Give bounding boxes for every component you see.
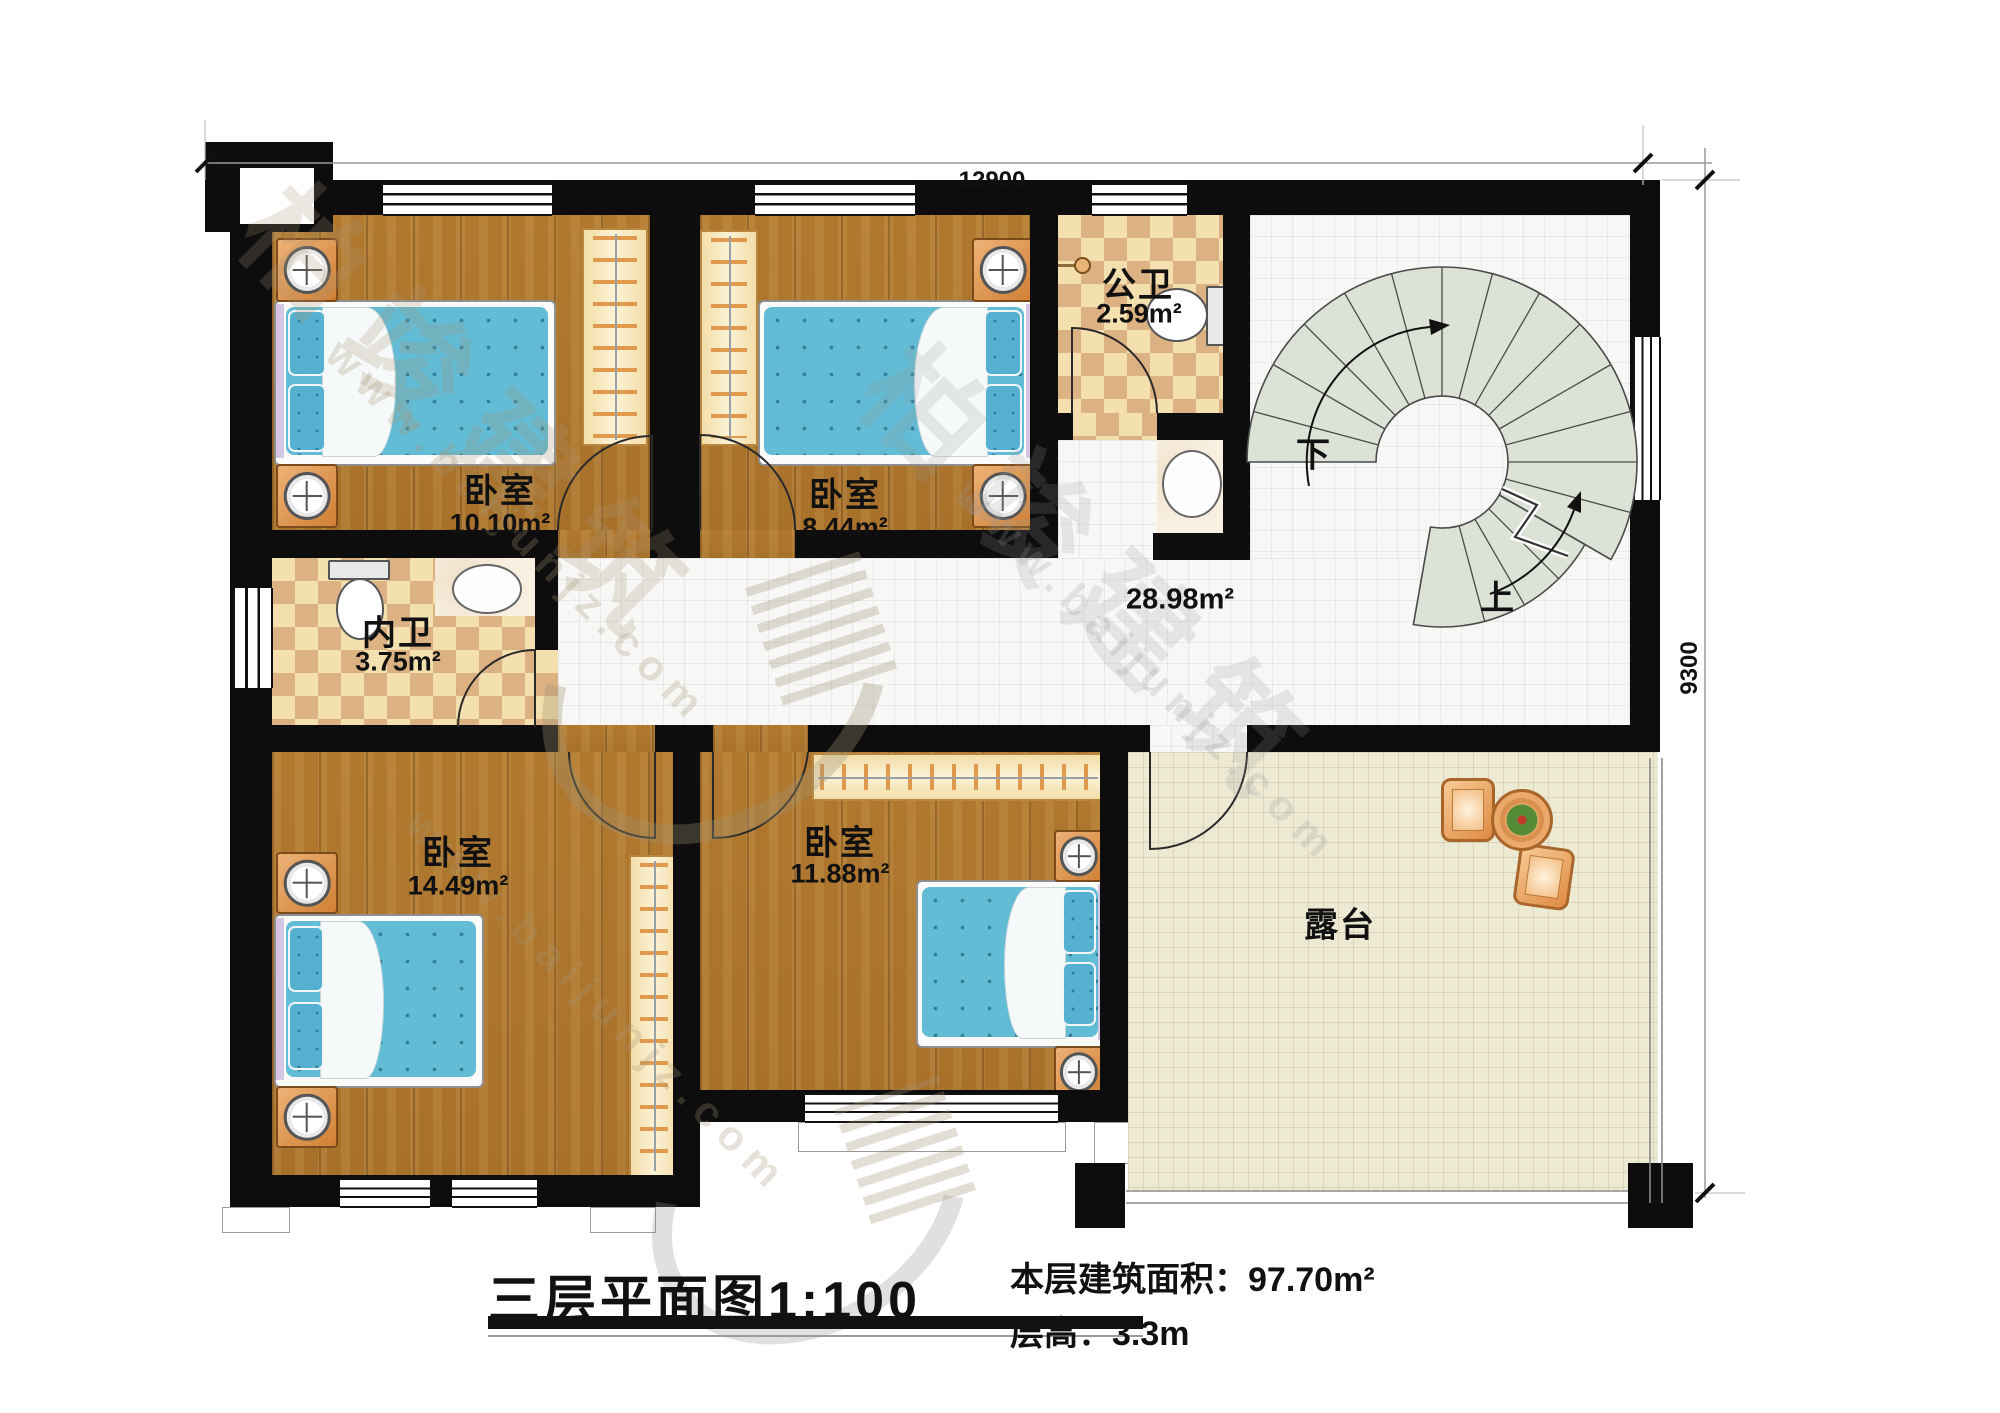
wall-stair-left bbox=[1223, 215, 1250, 560]
window-bottom-left-1 bbox=[340, 1178, 430, 1208]
terrace-column-right bbox=[1628, 1163, 1693, 1228]
wardrobe bbox=[582, 228, 648, 446]
bed-blanket bbox=[914, 307, 988, 457]
stat-floor-height-value: 3.3m bbox=[1112, 1315, 1190, 1353]
label-bedroom-tl-area: 10.10m² bbox=[450, 509, 551, 540]
floor-stair-lobby bbox=[1250, 215, 1630, 558]
chair-cushion bbox=[1524, 855, 1563, 899]
nightstand bbox=[276, 852, 338, 914]
window-right-stair bbox=[1633, 337, 1661, 500]
toilet-tank bbox=[328, 560, 390, 580]
nightstand bbox=[972, 464, 1034, 528]
label-bedroom-bl-area: 14.49m² bbox=[408, 871, 509, 902]
bed-pillow bbox=[288, 310, 326, 376]
window-bottom-left-2 bbox=[452, 1178, 537, 1208]
window-left-bath bbox=[233, 588, 273, 688]
label-terrace-name: 露台 bbox=[1304, 898, 1376, 947]
nightstand bbox=[1054, 830, 1104, 882]
sill-bottom-a bbox=[222, 1207, 290, 1233]
nightstand bbox=[972, 238, 1034, 302]
label-hallway-area: 28.98m² bbox=[1126, 584, 1234, 617]
terrace-table bbox=[1491, 789, 1553, 851]
bed-blanket bbox=[320, 921, 384, 1079]
wardrobe bbox=[629, 855, 679, 1177]
lamp-icon bbox=[980, 472, 1027, 520]
wall-public-bath-bottom-left bbox=[1030, 413, 1073, 440]
dimension-top: 12900 bbox=[959, 167, 1026, 195]
door-gap-bedroom-bl bbox=[558, 725, 655, 752]
door-gap-bedroom-tm bbox=[700, 530, 795, 558]
window-top-2 bbox=[755, 183, 915, 216]
label-bedroom-tl-name: 卧室 bbox=[464, 464, 536, 513]
bed-pillow bbox=[288, 926, 324, 992]
wall-bedroom-tm-right bbox=[1030, 215, 1058, 558]
stat-floor-area-label: 本层建筑面积： bbox=[1010, 1261, 1248, 1299]
label-stair-down: 下 bbox=[1296, 428, 1330, 477]
wall-between-bottom-bedrooms bbox=[673, 725, 700, 1207]
sink-icon bbox=[1162, 450, 1222, 518]
door-gap-private-bath bbox=[535, 650, 558, 727]
stat-floor-area: 本层建筑面积：97.70m² bbox=[1010, 1252, 1375, 1301]
wall-left bbox=[230, 180, 272, 1207]
window-top-1 bbox=[383, 183, 552, 216]
bed bbox=[916, 880, 1108, 1048]
bed-pillow bbox=[1062, 890, 1096, 954]
terrace-chair bbox=[1512, 842, 1576, 911]
stat-floor-area-value: 97.70m² bbox=[1248, 1261, 1375, 1299]
wardrobe-pole bbox=[729, 236, 731, 440]
label-bedroom-bm-area: 11.88m² bbox=[790, 859, 889, 890]
floor-hallway bbox=[558, 558, 1630, 725]
sink-icon bbox=[452, 564, 522, 614]
wall-public-bath-bottom-right bbox=[1157, 413, 1250, 440]
label-stair-up: 上 bbox=[1480, 571, 1514, 620]
wall-between-top-bedrooms bbox=[650, 215, 700, 558]
stat-floor-height: 层高：3.3m bbox=[1010, 1306, 1190, 1355]
wardrobe-pole bbox=[818, 777, 1098, 779]
terrace-column-left bbox=[1075, 1163, 1125, 1228]
nightstand bbox=[276, 464, 338, 528]
nightstand bbox=[276, 1086, 338, 1148]
wall-corridor-bottom-c bbox=[808, 725, 1150, 752]
wall-corridor-bottom-a bbox=[272, 725, 558, 752]
bed-headboard bbox=[276, 304, 284, 458]
sill-bottom-b bbox=[590, 1207, 656, 1233]
wardrobe-pole bbox=[654, 861, 656, 1171]
wardrobe bbox=[700, 230, 758, 446]
wall-alcove-bottom bbox=[1153, 533, 1250, 560]
label-bedroom-bm-name: 卧室 bbox=[804, 816, 876, 865]
floor-plan-canvas: 柏竣建筑 www.baijunjz.com 柏竣建筑 www.baijunjz.… bbox=[0, 0, 2000, 1413]
bed-headboard bbox=[276, 918, 284, 1080]
window-bottom-middle bbox=[805, 1093, 1058, 1123]
wall-terrace-top bbox=[1247, 725, 1658, 752]
bed-blanket bbox=[1004, 887, 1066, 1039]
label-bedroom-tm-area: 8.44m² bbox=[802, 513, 888, 544]
lamp-icon bbox=[1060, 836, 1098, 876]
label-bedroom-bl-name: 卧室 bbox=[422, 826, 494, 875]
wardrobe bbox=[812, 753, 1104, 801]
wall-private-bath-right bbox=[535, 558, 558, 650]
towel-knob-icon bbox=[1074, 257, 1091, 274]
wardrobe-pole bbox=[615, 234, 617, 440]
corner-niche-opening bbox=[240, 168, 314, 224]
label-public-bath-area: 2.59m² bbox=[1096, 299, 1182, 330]
bed-blanket bbox=[322, 307, 396, 457]
door-gap-public-bath bbox=[1073, 413, 1157, 440]
bed bbox=[274, 914, 484, 1088]
bed-pillow bbox=[288, 384, 326, 452]
bed-pillow bbox=[984, 384, 1022, 452]
window-top-3 bbox=[1092, 183, 1187, 216]
label-private-bath-area: 3.75m² bbox=[355, 647, 441, 678]
door-gap-terrace bbox=[1150, 725, 1247, 752]
bed bbox=[758, 300, 1036, 466]
bed-pillow bbox=[1062, 962, 1096, 1026]
lamp-icon bbox=[284, 1094, 331, 1141]
lamp-icon bbox=[980, 246, 1027, 294]
sill-bottom-middle bbox=[798, 1122, 1066, 1152]
lamp-icon bbox=[284, 246, 331, 294]
door-gap-bedroom-tl bbox=[558, 530, 650, 558]
chair-cushion bbox=[1452, 789, 1484, 831]
terrace-chair bbox=[1441, 778, 1495, 842]
label-bedroom-tm-name: 卧室 bbox=[809, 468, 881, 517]
lamp-icon bbox=[284, 860, 331, 907]
floor-hall-strip bbox=[1058, 440, 1157, 558]
bed-pillow bbox=[288, 1002, 324, 1070]
lamp-icon bbox=[284, 472, 331, 520]
wall-bedroom-bm-right bbox=[1100, 725, 1128, 1122]
door-gap-bedroom-bm bbox=[713, 725, 808, 752]
nightstand bbox=[276, 238, 338, 302]
bed bbox=[274, 300, 556, 466]
stat-floor-height-label: 层高： bbox=[1010, 1315, 1112, 1353]
bed-pillow bbox=[984, 310, 1022, 376]
lamp-icon bbox=[1060, 1052, 1098, 1092]
dimension-right: 9300 bbox=[1676, 641, 1704, 694]
floor-terrace bbox=[1128, 752, 1658, 1190]
